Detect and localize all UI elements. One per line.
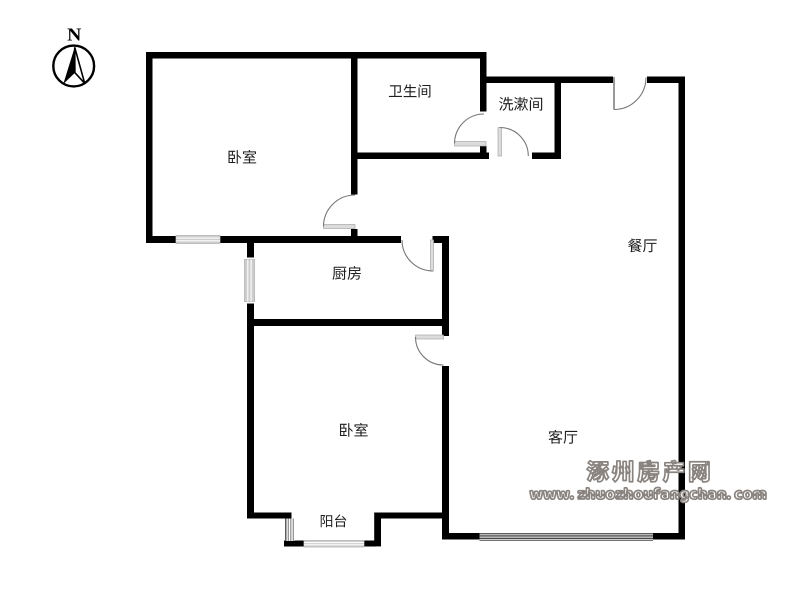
svg-text:N: N	[67, 25, 82, 45]
